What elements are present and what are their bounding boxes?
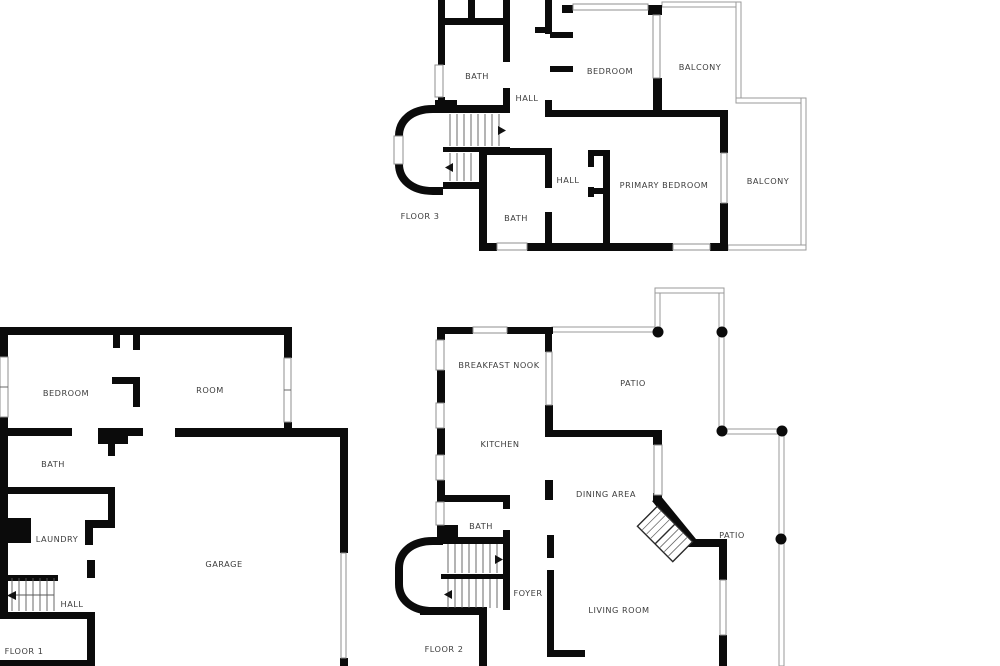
wall-segment bbox=[284, 327, 292, 358]
wall-segment bbox=[545, 430, 662, 437]
window bbox=[546, 352, 552, 405]
railing bbox=[719, 290, 724, 332]
wall-segment bbox=[527, 243, 610, 251]
wall-segment bbox=[562, 5, 573, 13]
wall-segment bbox=[545, 212, 552, 245]
room-label-room: ROOM bbox=[196, 385, 224, 395]
wall-segment bbox=[535, 27, 545, 33]
wall-segment bbox=[720, 110, 728, 153]
wall-segment bbox=[545, 110, 728, 117]
wall-segment bbox=[133, 327, 140, 350]
room-label-bedroom: BEDROOM bbox=[43, 388, 89, 398]
wall-segment bbox=[437, 495, 510, 502]
window bbox=[435, 65, 443, 97]
floor1-title: FLOOR 1 bbox=[5, 646, 44, 656]
wall-segment bbox=[437, 428, 445, 455]
railing-post bbox=[777, 426, 788, 437]
wall-segment bbox=[0, 612, 90, 619]
floor-plan-page: BATH HALL BEDROOM BALCONY HALL PRIMARY B… bbox=[0, 0, 1000, 666]
wall-segment bbox=[503, 0, 510, 62]
wall-segment bbox=[438, 0, 445, 33]
window bbox=[473, 327, 507, 333]
wall-segment bbox=[113, 327, 120, 348]
room-label-living-room: LIVING ROOM bbox=[588, 605, 649, 615]
wall-segment bbox=[133, 377, 140, 407]
wall-segment bbox=[108, 487, 115, 520]
room-label-hall-upper: HALL bbox=[516, 93, 539, 103]
wall-segment bbox=[479, 243, 497, 251]
wall-segment bbox=[3, 575, 58, 581]
wall-segment bbox=[0, 660, 90, 666]
sliding-door bbox=[721, 153, 727, 203]
wall-segment bbox=[87, 560, 95, 578]
room-label-patio-upper: PATIO bbox=[620, 378, 646, 388]
wall-segment bbox=[545, 148, 552, 188]
wall-segment bbox=[479, 148, 487, 245]
wall-segment bbox=[85, 528, 93, 545]
room-label-bedroom: BEDROOM bbox=[587, 66, 633, 76]
wall-segment bbox=[85, 520, 115, 528]
wall-segment bbox=[479, 615, 487, 666]
room-label-balcony-upper: BALCONY bbox=[679, 62, 722, 72]
room-label-kitchen: KITCHEN bbox=[481, 439, 520, 449]
floor3-title: FLOOR 3 bbox=[401, 211, 440, 221]
wall-segment bbox=[653, 437, 662, 445]
wall-segment bbox=[550, 66, 573, 72]
railing bbox=[728, 245, 806, 250]
room-label-balcony-lower: BALCONY bbox=[747, 176, 790, 186]
wall-segment bbox=[503, 495, 510, 509]
wall-segment bbox=[648, 5, 662, 15]
room-label-primary-bedroom: PRIMARY BEDROOM bbox=[620, 180, 709, 190]
wall-segment bbox=[719, 635, 727, 666]
room-label-patio-lower: PATIO bbox=[719, 530, 745, 540]
wall-segment bbox=[175, 428, 348, 437]
wall-segment bbox=[547, 570, 554, 652]
wall-segment bbox=[108, 436, 115, 456]
window bbox=[436, 340, 444, 370]
railing bbox=[779, 431, 784, 666]
wall-segment bbox=[610, 243, 673, 251]
railing bbox=[552, 327, 658, 332]
wall-segment bbox=[8, 518, 31, 543]
wall-segment bbox=[437, 327, 445, 340]
room-label-breakfast-nook: BREAKFAST NOOK bbox=[458, 360, 539, 370]
wall-segment bbox=[719, 545, 727, 580]
railing bbox=[801, 98, 806, 250]
wall-segment bbox=[438, 33, 445, 65]
wall-segment bbox=[443, 18, 505, 25]
sliding-door bbox=[653, 15, 660, 78]
wall-segment bbox=[0, 417, 8, 618]
wall-segment bbox=[545, 480, 553, 500]
sliding-door bbox=[673, 244, 710, 250]
floor-plan-drawing: BATH HALL BEDROOM BALCONY HALL PRIMARY B… bbox=[0, 0, 1000, 666]
room-label-foyer: FOYER bbox=[513, 588, 542, 598]
railing-post bbox=[776, 534, 787, 545]
wall-segment bbox=[545, 0, 552, 34]
window bbox=[436, 455, 444, 480]
railing bbox=[719, 331, 724, 432]
wall-segment bbox=[441, 574, 508, 579]
wall-segment bbox=[468, 0, 475, 20]
floor2-title: FLOOR 2 bbox=[425, 644, 464, 654]
window bbox=[436, 502, 444, 525]
wall-segment bbox=[112, 377, 133, 384]
window bbox=[436, 403, 444, 428]
room-label-bath: BATH bbox=[469, 521, 493, 531]
wall-segment bbox=[479, 148, 552, 155]
railing bbox=[736, 2, 741, 103]
wall-segment bbox=[603, 152, 610, 243]
wall-segment bbox=[547, 535, 554, 558]
room-label-bath: BATH bbox=[41, 459, 65, 469]
wall-segment bbox=[0, 327, 8, 357]
sliding-door bbox=[720, 580, 726, 635]
wall-segment bbox=[437, 537, 510, 544]
room-label-hall-lower: HALL bbox=[557, 175, 580, 185]
railing-post bbox=[717, 327, 728, 338]
railing-post bbox=[717, 426, 728, 437]
garage-door bbox=[341, 553, 346, 658]
railing bbox=[655, 288, 724, 293]
wall-segment bbox=[550, 32, 573, 38]
room-label-garage: GARAGE bbox=[205, 559, 242, 569]
wall-segment bbox=[547, 650, 585, 657]
window bbox=[394, 136, 403, 164]
wall-segment bbox=[0, 327, 292, 335]
window bbox=[573, 4, 648, 10]
railing bbox=[662, 2, 740, 7]
room-label-bath-upper: BATH bbox=[465, 71, 489, 81]
railing bbox=[722, 429, 784, 434]
window bbox=[497, 243, 527, 250]
railing bbox=[736, 98, 806, 103]
room-label-hall: HALL bbox=[61, 599, 84, 609]
room-label-bath-lower: BATH bbox=[504, 213, 528, 223]
wall-segment bbox=[503, 88, 510, 113]
wall-segment bbox=[720, 203, 728, 247]
wall-segment bbox=[0, 428, 72, 436]
wall-segment bbox=[340, 658, 348, 666]
window bbox=[654, 445, 662, 495]
wall-segment bbox=[438, 105, 510, 113]
wall-segment bbox=[545, 327, 552, 352]
railing-post bbox=[653, 327, 664, 338]
wall-segment bbox=[437, 370, 445, 403]
wall-segment bbox=[87, 612, 95, 666]
wall-segment bbox=[0, 487, 115, 494]
room-label-dining-area: DINING AREA bbox=[576, 489, 636, 499]
wall-segment bbox=[340, 428, 348, 553]
room-label-laundry: LAUNDRY bbox=[36, 534, 79, 544]
railing bbox=[655, 290, 660, 332]
